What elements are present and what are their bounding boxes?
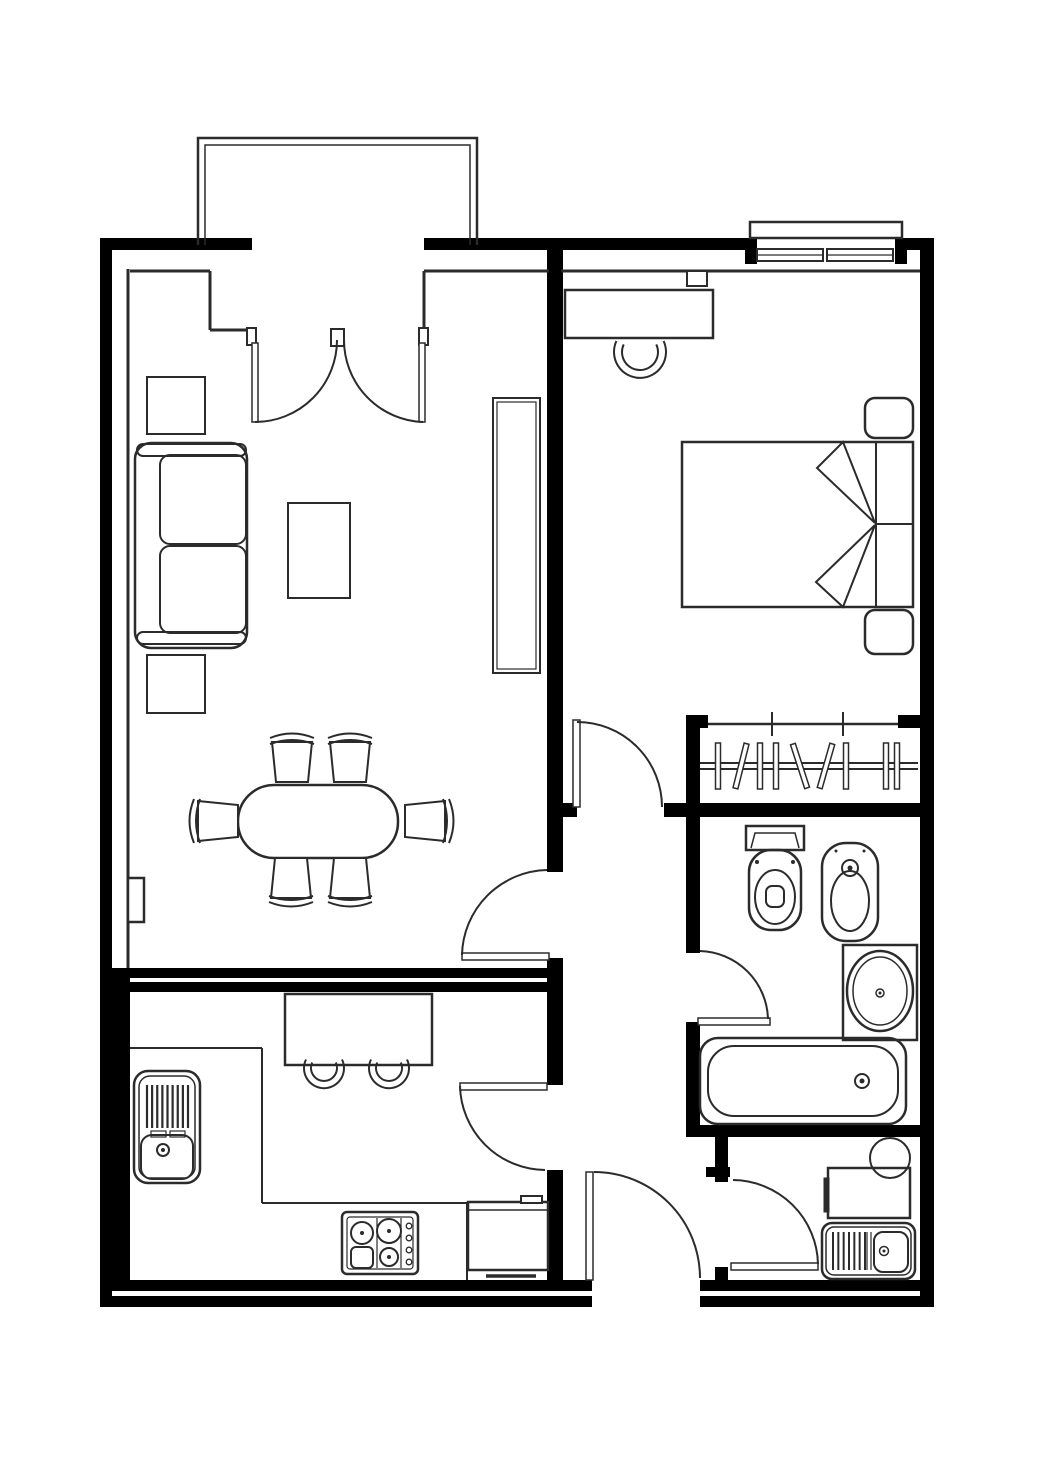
entrance-door-leaf — [586, 1172, 593, 1280]
hanger-7 — [844, 743, 849, 789]
living-partition-upper — [547, 250, 563, 872]
chair-seat — [198, 801, 238, 841]
bathroom-left-wall-lower — [686, 1022, 700, 1137]
floor-plan-page — [0, 0, 1048, 1475]
outer-wall-right — [920, 238, 934, 1307]
bidet-faucet-dot — [848, 866, 853, 871]
bottom-wall-right-inner — [700, 1280, 934, 1291]
bottom-wall-right-outer — [700, 1296, 934, 1307]
closet-jamb-right — [898, 715, 934, 728]
window-jamb-right — [895, 238, 907, 264]
hall-kitchen-wall-upper — [547, 992, 563, 1085]
toilet-bolt-left — [755, 860, 759, 864]
hanger-1 — [716, 743, 721, 789]
hanger-8 — [884, 743, 889, 789]
burner-top-left-dot — [360, 1231, 364, 1235]
hanger-4 — [774, 743, 779, 789]
bedroom-door-leaf — [573, 720, 580, 807]
hanger-9 — [895, 743, 900, 789]
bottom-wall-left-outer — [100, 1296, 592, 1307]
hall-kitchen-wall-lower — [547, 1170, 563, 1280]
bidet-dot-right — [863, 850, 866, 853]
door-leaf-right — [419, 343, 425, 422]
fridge-handle — [521, 1196, 542, 1203]
closet-left-wall — [686, 715, 700, 817]
bedroom-top-notch — [687, 271, 707, 286]
chair-seat — [272, 742, 312, 782]
bathtub-drain-dot — [860, 1079, 865, 1084]
wall-pier — [128, 878, 144, 922]
chair-seat — [271, 858, 311, 898]
outer-wall-top-a — [100, 238, 252, 250]
utility-drainboard — [833, 1232, 865, 1270]
kitchen-sink-drain-dot — [161, 1148, 165, 1152]
bathroom-top-wall — [700, 803, 934, 817]
door-leaf-left — [252, 343, 258, 422]
bathroom-left-wall-upper — [686, 817, 700, 953]
bathroom-bottom-wall — [686, 1125, 934, 1137]
chair-seat — [330, 858, 370, 898]
bathroom-door-leaf — [698, 1018, 770, 1025]
utility-door-leaf — [731, 1263, 818, 1270]
utility-left-bottom — [715, 1267, 728, 1280]
kitchen-wall-band-b — [111, 982, 557, 992]
washbasin-faucet-dot — [879, 992, 882, 995]
chair-seat — [330, 742, 370, 782]
utility-jamb — [706, 1167, 730, 1177]
hanger-3 — [758, 743, 763, 789]
floor-plan — [0, 0, 1048, 1475]
kitchen-wall-band-a — [111, 968, 557, 978]
toilet-bolt-right — [791, 860, 795, 864]
kitchen-drainboard — [147, 1085, 188, 1128]
kitchen-door-leaf — [460, 1083, 547, 1090]
window-jamb-left — [745, 238, 757, 264]
utility-sink-drain-dot — [883, 1250, 886, 1253]
closet-jamb-left — [686, 715, 708, 728]
worktop-handle — [824, 1178, 829, 1212]
burner-top-right-dot — [387, 1229, 391, 1233]
bottom-wall-left-inner — [100, 1280, 592, 1291]
burner-bottom-right-dot — [387, 1255, 391, 1259]
living-door-leaf — [462, 953, 549, 960]
bidet-dot-left — [835, 850, 838, 853]
kitchen-left-wall — [111, 968, 130, 1280]
outer-wall-top-b — [424, 238, 753, 250]
chair-seat — [405, 801, 445, 841]
outer-wall-left — [100, 238, 112, 1307]
